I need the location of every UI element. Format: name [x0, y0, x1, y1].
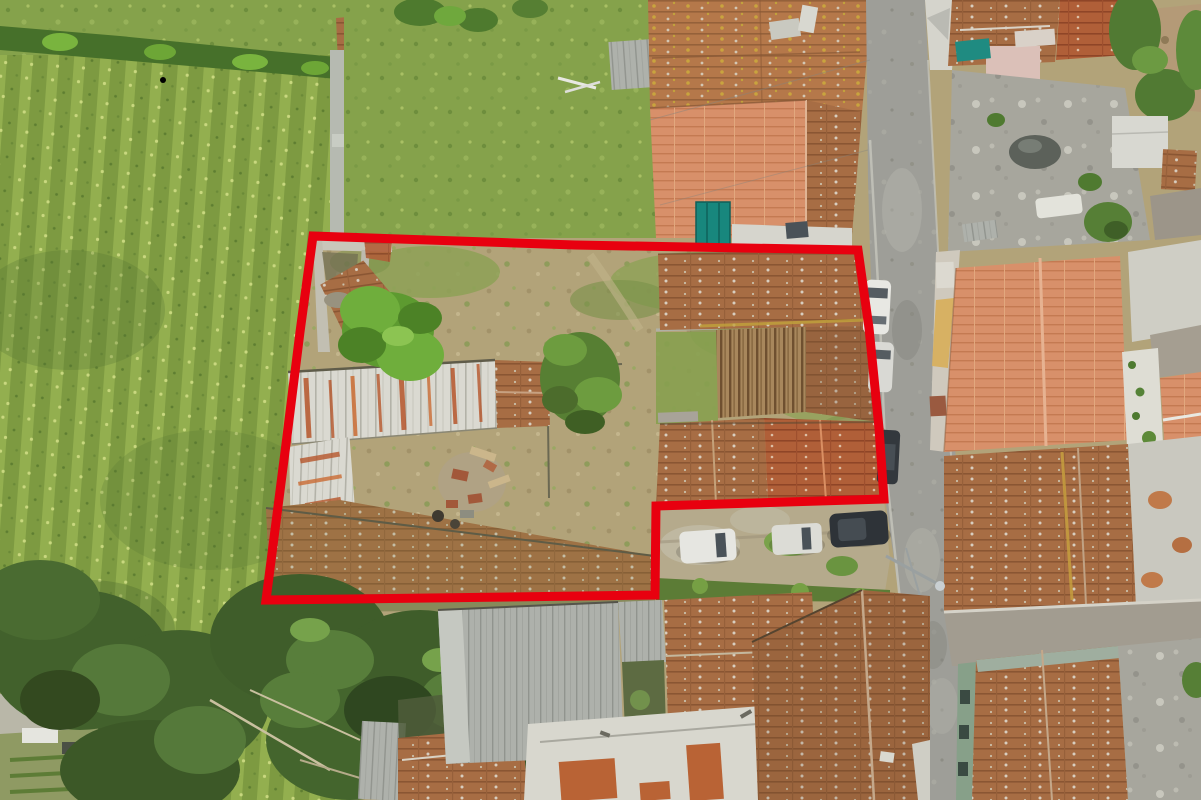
yard-tree — [542, 386, 578, 414]
se-facade-window — [960, 690, 970, 704]
white-roof-tile-patch — [686, 743, 724, 800]
hedge-bush — [144, 44, 176, 60]
courtyard-bush — [1078, 173, 1102, 191]
wall-orange-blotch — [1148, 491, 1172, 509]
patio-plant — [1128, 361, 1136, 369]
east-wall-white — [1128, 240, 1201, 342]
solar-panel — [785, 221, 808, 239]
se-facade-window — [958, 762, 968, 776]
white-roof-tile-patch — [639, 781, 670, 800]
hedge-bush — [42, 33, 78, 51]
ne-greenery — [1132, 46, 1168, 74]
patio-plant — [1136, 388, 1145, 397]
se-courtyard — [1118, 638, 1201, 800]
lamp-head — [935, 581, 945, 591]
rubble-pot — [432, 510, 444, 522]
stone-wall-band — [1150, 188, 1201, 240]
patio-plant — [1132, 412, 1140, 420]
parked-suv-roof — [837, 518, 866, 542]
sw-white-panel — [22, 728, 58, 743]
batten-roof — [716, 327, 806, 418]
gray-wall-bit — [658, 411, 698, 422]
pink-house-trim — [1014, 29, 1055, 48]
yard-tree — [543, 334, 587, 366]
street-worn-patch — [882, 168, 922, 252]
rubble-pot — [450, 519, 460, 529]
courtyard-tree-dark — [1104, 221, 1128, 239]
teal-garage-door — [696, 202, 730, 246]
se-facade-window — [959, 725, 969, 739]
ruins-bush-light — [382, 326, 414, 346]
street-car-white-1-glass — [867, 288, 887, 299]
street-dark-patch — [892, 300, 922, 360]
parked-car-white-1-glass — [715, 533, 727, 558]
se-chimney — [879, 751, 894, 763]
parked-car-white-1 — [679, 528, 737, 564]
white-roof-tile-patch — [559, 758, 618, 800]
teal-awning — [955, 38, 991, 61]
street-roof-upper — [658, 250, 868, 330]
white-flat-roof — [1112, 116, 1168, 168]
yard-tree — [574, 377, 622, 413]
facade-brown — [929, 396, 946, 417]
tree-canopy-spark — [290, 618, 330, 642]
scene-layer — [0, 0, 1201, 800]
aerial-photo-stage — [0, 0, 1201, 800]
rubble-brick — [446, 500, 458, 508]
inner-grass-strip — [656, 332, 718, 424]
alley-weed — [630, 690, 650, 710]
salmon-roof — [944, 256, 1128, 452]
white-dot-field — [160, 77, 166, 83]
courtyard-tarp-light — [1018, 139, 1042, 153]
wall-orange-blotch — [1172, 537, 1192, 553]
hedge-blob — [692, 578, 708, 594]
tree-canopy-dark — [20, 670, 100, 730]
rubble-stone — [460, 510, 474, 518]
hedge-bush — [301, 61, 329, 75]
hedge-bush — [232, 54, 268, 70]
tile-debris-patch — [1161, 149, 1197, 191]
ne-ruin-speck — [1161, 36, 1169, 44]
east-white-wall — [1128, 436, 1201, 606]
tree-canopy-light — [154, 706, 246, 774]
yard-tree-shadow — [565, 410, 605, 434]
fiber-roof-ext — [618, 600, 666, 662]
facade-white — [936, 262, 955, 289]
ruins-bush — [340, 286, 400, 334]
north-yard-grass — [344, 0, 660, 238]
tile-roof-mid-ridge — [495, 392, 549, 393]
parking-grass — [826, 556, 858, 576]
street-worn-patch — [926, 678, 958, 734]
yard-fence — [548, 420, 549, 498]
ruins-bush — [338, 327, 386, 363]
parked-car-white-2-glass — [801, 527, 811, 549]
wall-orange-blotch — [1141, 572, 1163, 588]
yard-bush — [434, 6, 466, 26]
courtyard-bush — [987, 113, 1005, 127]
aerial-photo — [0, 0, 1201, 800]
east-brown-roof — [944, 444, 1136, 612]
parked-car-white-2 — [771, 523, 823, 556]
